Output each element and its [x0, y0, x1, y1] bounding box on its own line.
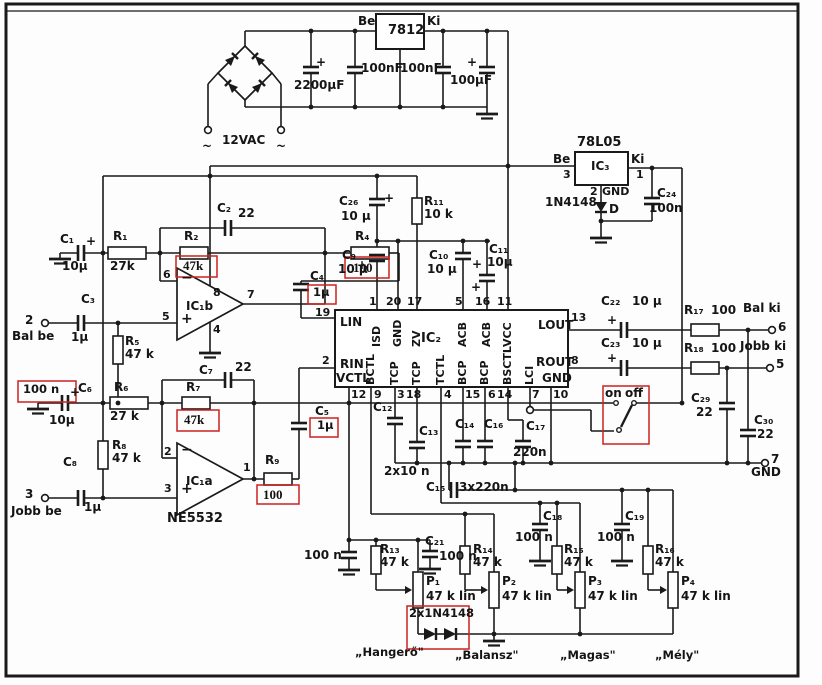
- label-reg1_in: Be: [358, 15, 375, 27]
- label-c1_plus: +: [86, 235, 96, 247]
- label-p1_ref: P₁: [426, 575, 440, 587]
- label-sw_off: off: [625, 387, 643, 399]
- label-r11_val: 10 k: [424, 208, 453, 220]
- label-r15_val: 47 k: [564, 556, 593, 568]
- label-term2_label: Bal be: [12, 330, 54, 342]
- label-reg2_pin_out: 1: [636, 169, 644, 180]
- label-r17_ref: R₁₇: [684, 304, 704, 316]
- label-p4b: 4: [444, 389, 452, 400]
- label-p5t: 5: [455, 296, 463, 307]
- label-ac_t1: ~: [202, 140, 212, 152]
- label-pin3o: 3: [164, 483, 172, 494]
- label-c11_ref: C₁₁: [489, 243, 508, 255]
- label-p1_val: 47 k lin: [426, 590, 476, 602]
- label-r13_ref: R₁₃: [380, 543, 400, 555]
- label-c12_ref: C₁₂: [373, 401, 392, 413]
- label-term3_num: 3: [25, 488, 33, 500]
- label-c30_ref: C₃₀: [754, 414, 773, 426]
- schematic-page: 12VAC~~7812BeKi2200µF100nF100nF100µF++78…: [0, 0, 822, 685]
- label-r17_val: 100: [711, 304, 736, 316]
- label-c15_ref: C₁₅: [426, 481, 445, 493]
- label-p2_ref: P₂: [502, 575, 516, 587]
- label-iv_bsctl: BSCTL: [502, 346, 513, 385]
- label-c2_ref: C₂: [217, 202, 231, 214]
- label-p9: 9: [374, 389, 382, 400]
- label-rb_c5: 1µ: [317, 420, 333, 432]
- label-rb_c4: 1µ: [313, 287, 329, 299]
- label-lout: LOUT: [538, 319, 573, 331]
- label-term6_num: 6: [778, 321, 786, 333]
- label-c26_ref: C₂₆: [339, 195, 358, 207]
- label-p1t: 1: [369, 296, 377, 307]
- label-p18: 18: [406, 389, 421, 400]
- label-c26_val: 10 µ: [341, 210, 371, 222]
- label-pin7: 7: [247, 289, 255, 300]
- label-d1_ref: D: [609, 203, 619, 215]
- label-p6b: 6: [488, 389, 496, 400]
- label-c1_ref: C₁: [60, 233, 74, 245]
- label-reg2_pin_in: 3: [563, 169, 571, 180]
- label-p20: 20: [386, 296, 401, 307]
- label-c_2200: 2200µF: [294, 79, 344, 91]
- label-term7_label: GND: [751, 466, 781, 478]
- label-c19_ref: C₁₉: [625, 510, 644, 522]
- label-c3_val: 1µ: [71, 331, 88, 343]
- label-c30_val: 22: [757, 428, 774, 440]
- label-c_100nf_1: 100nF: [361, 62, 403, 74]
- label-c19_val: 100 n: [597, 531, 635, 543]
- label-c18_val: 100 n: [515, 531, 553, 543]
- label-r13_val: 47 k: [380, 556, 409, 568]
- label-r18_val: 100: [711, 342, 736, 354]
- label-p10: 10: [553, 389, 568, 400]
- label-c24_val: 100n: [649, 202, 683, 214]
- labels-layer: 12VAC~~7812BeKi2200µF100nF100nF100µF++78…: [0, 0, 822, 685]
- label-c18_ref: C₁₈: [543, 510, 562, 522]
- label-c6_plus: +: [70, 386, 80, 398]
- label-c1_val: 10µ: [62, 260, 88, 272]
- label-term5_label: Jobb ki: [740, 340, 786, 352]
- label-op2: +: [181, 482, 193, 496]
- label-r1_val: 27k: [110, 260, 135, 272]
- label-c23_ref: C₂₃: [601, 337, 620, 349]
- label-plus_2200: +: [316, 56, 326, 68]
- label-c9_ref: C₉: [342, 249, 356, 261]
- label-r15_ref: R₁₅: [564, 543, 584, 555]
- label-c5_ref: C₅: [315, 405, 329, 417]
- label-p7b: 7: [532, 389, 540, 400]
- label-c29_val: 22: [696, 406, 713, 418]
- label-c23_plus: +: [607, 352, 617, 364]
- label-r6_val: 27 k: [110, 410, 139, 422]
- label-p3_ref: P₃: [588, 575, 602, 587]
- label-rb_c6: 100 n: [23, 384, 59, 396]
- label-pin5: 5: [162, 311, 170, 322]
- label-r6_ref: R₆: [114, 381, 129, 393]
- label-pin6: 6: [163, 269, 171, 280]
- label-p3_val: 47 k lin: [588, 590, 638, 602]
- label-om1: −: [181, 271, 193, 285]
- label-iv_acb2: ACB: [481, 322, 492, 347]
- label-r2_ref: R₂: [184, 230, 199, 242]
- label-c_100uf: 100µF: [450, 74, 492, 86]
- label-pin4o: 4: [213, 324, 221, 335]
- label-d1_type: 1N4148: [545, 196, 597, 208]
- label-p15: 15: [465, 389, 480, 400]
- label-iv_vcc: VCC: [502, 322, 513, 347]
- label-c22_plus: +: [607, 314, 617, 326]
- label-iv_gnd20: GND: [392, 320, 403, 347]
- label-p13: 13: [571, 312, 586, 323]
- label-p8: 8: [571, 355, 579, 366]
- label-cap_vol: „Hangerő": [355, 647, 424, 659]
- label-iv_bctl: BCTL: [365, 354, 376, 385]
- label-c9_plus: +: [357, 259, 367, 271]
- label-rout: ROUT: [536, 356, 573, 368]
- label-term3_label: Jobb be: [11, 505, 62, 517]
- label-p2: 2: [322, 355, 330, 366]
- label-p2_val: 47 k lin: [502, 590, 552, 602]
- label-ac_label: 12VAC: [222, 134, 265, 146]
- label-c8_val: 1µ: [84, 501, 101, 513]
- label-reg2_name: 78L05: [577, 136, 621, 149]
- label-c16_ref: C₁₆: [484, 418, 503, 430]
- label-r8_ref: R₈: [112, 439, 127, 451]
- label-c4_ref: C₄: [310, 270, 324, 282]
- label-c21_val: 100 n: [439, 550, 477, 562]
- label-r16_ref: R₁₆: [655, 543, 675, 555]
- label-iv_bcp2: BCP: [479, 360, 490, 385]
- label-cap_bass: „Mély": [655, 650, 699, 662]
- label-iv_bcp1: BCP: [457, 360, 468, 385]
- label-p14: 14: [497, 389, 512, 400]
- label-r7_ref: R₇: [186, 381, 201, 393]
- label-d_pair: 2x1N4148: [409, 608, 474, 620]
- label-c2_val: 22: [238, 207, 255, 219]
- label-plus_100uf: +: [467, 56, 477, 68]
- label-r11_ref: R₁₁: [424, 195, 444, 207]
- label-c20_val: 100 n: [304, 549, 342, 561]
- label-c17_ref: C₁₇: [526, 420, 545, 432]
- label-ac_t2: ~: [276, 140, 286, 152]
- label-c8_ref: C₈: [63, 456, 77, 468]
- label-r4_ref: R₄: [355, 230, 370, 242]
- label-r1_ref: R₁: [113, 230, 128, 242]
- label-r14_ref: R₁₄: [473, 543, 493, 555]
- label-iv_acb1: ACB: [457, 322, 468, 347]
- label-c24_ref: C₂₄: [657, 187, 676, 199]
- label-p19: 19: [315, 307, 330, 318]
- label-iv_isd: ISD: [371, 326, 382, 347]
- label-sw_on: on: [605, 387, 622, 399]
- label-c6_ref: C₆: [78, 382, 92, 394]
- label-c3_ref: C₃: [81, 293, 95, 305]
- label-ic2_ref: IC₂: [421, 332, 441, 345]
- label-reg1: 7812: [388, 24, 424, 37]
- label-r18_ref: R₁₈: [684, 342, 704, 354]
- label-r9_ref: R₉: [265, 454, 280, 466]
- label-p4_ref: P₄: [681, 575, 695, 587]
- label-c6_val: 10µ: [49, 414, 75, 426]
- label-c10_plus: +: [472, 258, 482, 270]
- label-cap_bal: „Balansz": [455, 650, 519, 662]
- label-pin2o: 2: [164, 446, 172, 457]
- label-term7_num: 7: [771, 453, 779, 465]
- label-c141516_val: 3x220n: [459, 481, 509, 493]
- label-r8_val: 47 k: [112, 452, 141, 464]
- label-r5_ref: R₅: [125, 335, 140, 347]
- label-r16_val: 47 k: [655, 556, 684, 568]
- label-iv_tctl: TCTL: [435, 355, 446, 385]
- label-c26_plus: +: [384, 192, 394, 204]
- label-p3b: 3: [397, 389, 405, 400]
- label-lin: LIN: [340, 316, 362, 328]
- label-om2: −: [181, 443, 193, 457]
- label-c10_val: 10 µ: [427, 263, 457, 275]
- label-iv_tcp1: TCP: [389, 361, 400, 385]
- label-c29_ref: C₂₉: [691, 392, 710, 404]
- label-p12: 12: [351, 389, 366, 400]
- label-r5_val: 47 k: [125, 348, 154, 360]
- label-c23_val: 10 µ: [632, 337, 662, 349]
- label-c22_val: 10 µ: [632, 295, 662, 307]
- label-reg2_gnd: GND: [602, 186, 629, 197]
- label-c17_val: 220n: [513, 446, 547, 458]
- label-c14_ref: C₁₄: [455, 418, 474, 430]
- label-pin8: 8: [213, 287, 221, 298]
- label-c1213_val: 2x10 n: [384, 465, 430, 477]
- label-rb_r9: 100: [263, 487, 283, 503]
- label-c11_plus: +: [471, 281, 481, 293]
- label-p11: 11: [497, 296, 512, 307]
- label-pin1o: 1: [243, 462, 251, 473]
- label-rin: RIN: [340, 358, 364, 370]
- label-reg2_ref: IC₃: [591, 160, 610, 172]
- label-ne5532: NE5532: [167, 512, 223, 525]
- label-term6_label: Bal ki: [743, 302, 781, 314]
- label-term5_num: 5: [776, 358, 784, 370]
- label-c_100nf_2: 100nF: [400, 62, 442, 74]
- label-rb_r7: 47k: [184, 412, 204, 428]
- label-c7_val: 22: [235, 361, 252, 373]
- label-reg2_in: Be: [553, 153, 570, 165]
- label-c10_ref: C₁₀: [429, 249, 448, 261]
- label-c13_ref: C₁₃: [419, 425, 438, 437]
- label-iv_zv: ZV: [411, 331, 422, 348]
- label-gnd_r: GND: [542, 372, 572, 384]
- label-reg1_out: Ki: [427, 15, 440, 27]
- label-iv_lci: LCI: [524, 366, 535, 385]
- label-op1: +: [181, 312, 193, 326]
- label-c21_ref: C₂₁: [425, 535, 444, 547]
- label-r14_val: 47 k: [473, 556, 502, 568]
- label-c7_ref: C₇: [199, 364, 213, 376]
- label-p16: 16: [475, 296, 490, 307]
- label-reg2_out: Ki: [631, 153, 644, 165]
- label-cap_tre: „Magas": [560, 650, 616, 662]
- label-c22_ref: C₂₂: [601, 295, 620, 307]
- label-c11_val: 10µ: [487, 256, 513, 268]
- label-term2_num: 2: [25, 314, 33, 326]
- label-p17: 17: [407, 296, 422, 307]
- label-iv_tcp2: TCP: [411, 361, 422, 385]
- label-p4_val: 47 k lin: [681, 590, 731, 602]
